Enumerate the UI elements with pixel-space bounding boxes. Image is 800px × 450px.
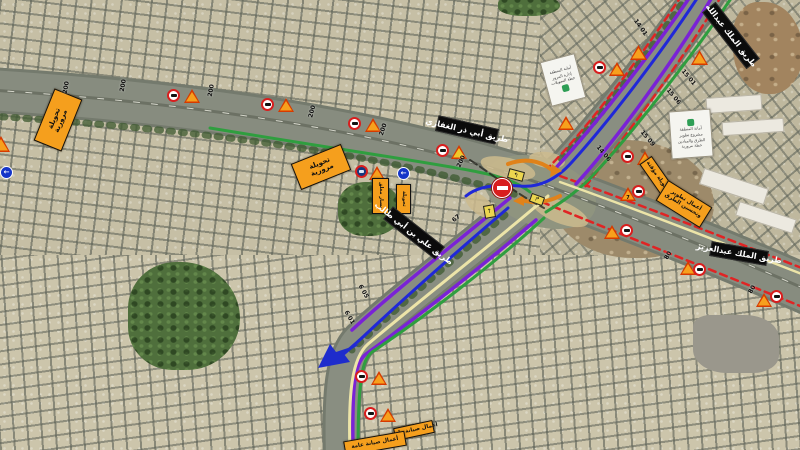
truck-ban-circle-icon [593,61,606,74]
truck-ban-circle-icon [621,150,634,163]
vehicle-glyph [171,94,177,98]
truck-ban-circle-icon [355,370,368,383]
truck-ban-circle-icon [770,290,783,303]
truck-ban-circle-icon [632,185,645,198]
roundabout-circle-icon [355,165,368,178]
no-entry-sign-icon [492,178,512,198]
truck-ban-circle-icon [348,117,361,130]
mandatory-direction-icon: ← [397,167,410,180]
truck-ban-circle-icon [620,224,633,237]
board-text: تحويلة [401,191,406,207]
lane-closure-board: تحويلة [396,184,411,214]
arrow-glyph: ← [4,169,10,176]
municipality-logo-icon [561,84,570,93]
arrow-glyph: ← [401,170,407,177]
mandatory-direction-icon: ← [0,166,13,179]
info-line: خطة مرورية [681,143,702,149]
no-entry-bar [497,186,508,190]
board-text: أعمال صيانة عامة [351,436,399,450]
truck-ban-circle-icon [436,144,449,157]
project-info-sign: أمانة المنطقة مشروع تطوير الطرق والميادي… [668,109,713,160]
truck-ban-circle-icon [364,407,377,420]
truck-ban-circle-icon [261,98,274,111]
traffic-plan-map: تحويلة مرورية تحويلة مرورية مسار مغلق ← … [0,0,800,450]
temp-direction-panel: ↑ [483,204,496,219]
truck-ban-circle-icon [693,263,706,276]
truck-ban-circle-icon [167,89,180,102]
